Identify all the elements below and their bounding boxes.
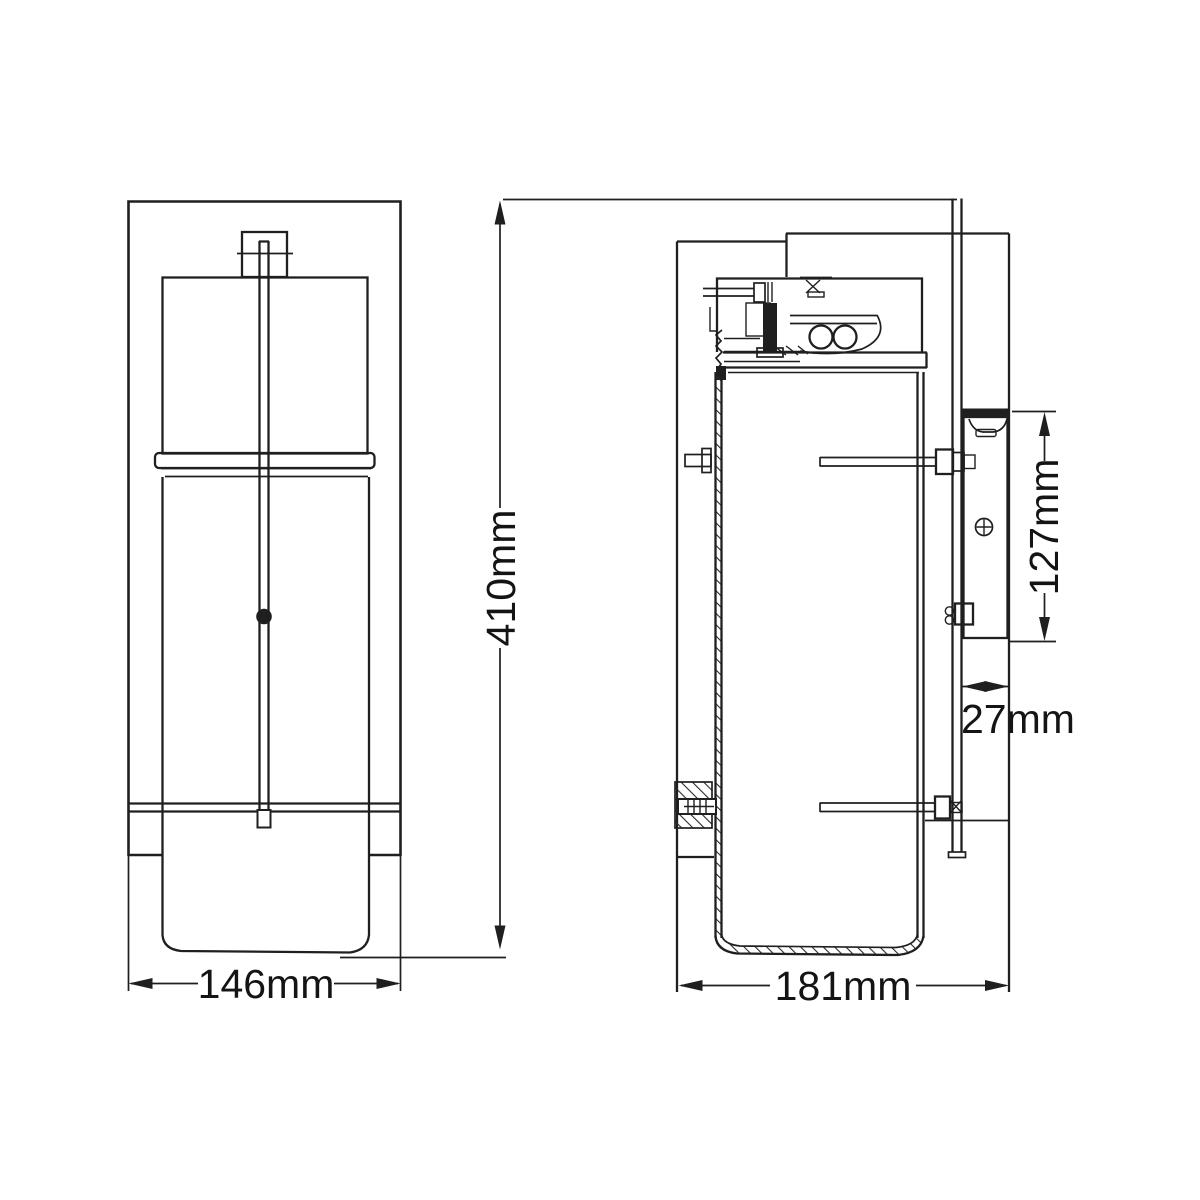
dimension-side-depth: 181mm [679, 963, 1010, 1009]
wall-anchor [675, 782, 716, 828]
technical-drawing-page: 146mm 410mm 181mm 127mm [0, 0, 1200, 1200]
glass-cylinder-front [163, 477, 370, 953]
backplate-outline [786, 234, 1009, 278]
frame-bar-foot [949, 852, 966, 858]
glass-rim [723, 353, 927, 369]
dim-27-arrow-right [985, 681, 1009, 692]
dim-146-arrow-left [129, 978, 153, 989]
dim-146-arrow-right [377, 978, 401, 989]
glass-bottom-section-fill [716, 934, 924, 955]
dim-410-label: 410mm [478, 510, 524, 647]
dim-181-label: 181mm [775, 963, 912, 1009]
dim-127-arrow-top [1039, 412, 1050, 436]
top-finial [242, 232, 287, 277]
upper-rod-nut3 [964, 455, 975, 469]
dim-410-extensions [340, 200, 957, 958]
top-clip-cross [806, 280, 820, 293]
wall-lantern-dimension-drawing: 146mm 410mm 181mm 127mm [0, 0, 1200, 1200]
canopy-bolt [703, 289, 754, 297]
dim-27-arrow-left [963, 681, 987, 692]
canopy-bolt-washer [768, 282, 772, 302]
dimensions: 146mm 410mm 181mm 127mm [129, 200, 1075, 1010]
upper-left-pin [685, 455, 711, 467]
glass-bottom-inner [722, 934, 918, 948]
dimension-bracket-height: 127mm [1010, 412, 1067, 642]
dim-27-label: 27mm [961, 696, 1075, 742]
glass-neck-lines [161, 469, 371, 477]
lower-rod-fitting [935, 797, 950, 819]
lamp-socket-hole-left [810, 326, 833, 349]
rod-knob [256, 609, 272, 625]
center-rod [259, 241, 269, 810]
top-clip-base [808, 292, 824, 297]
dim-146-label: 146mm [198, 961, 335, 1007]
side-frame-front-edge [677, 242, 786, 993]
front-view [128, 202, 401, 992]
front-frame-outline [129, 202, 401, 857]
socket-stud [763, 303, 777, 353]
frame-bar-side [953, 199, 962, 853]
dimension-front-width: 146mm [129, 961, 401, 1007]
socket-plate [790, 316, 877, 324]
bracket-top-band [962, 409, 1008, 418]
upper-band [155, 453, 375, 468]
dim-181-arrow-right [985, 980, 1009, 991]
dim-410-arrow-top [495, 201, 506, 225]
upper-left-pin-plate [702, 449, 711, 473]
dim-410-arrow-bottom [495, 926, 506, 950]
dimension-overall-height: 410mm [340, 200, 957, 958]
mounting-bracket [945, 409, 1008, 639]
dim-127-arrow-bottom [1039, 617, 1050, 641]
lamp-socket-hole-right [834, 326, 857, 349]
dim-127-label: 127mm [1021, 459, 1067, 596]
bracket-screw-cross [977, 520, 992, 535]
canopy-bolt-nut [754, 283, 765, 302]
rod-tip [258, 810, 271, 828]
side-view [675, 199, 1009, 993]
dim-181-arrow-left [679, 980, 703, 991]
dimension-bracket-offset: 27mm [961, 681, 1075, 742]
upper-rod-nut [936, 450, 953, 475]
top-cap [163, 278, 368, 454]
